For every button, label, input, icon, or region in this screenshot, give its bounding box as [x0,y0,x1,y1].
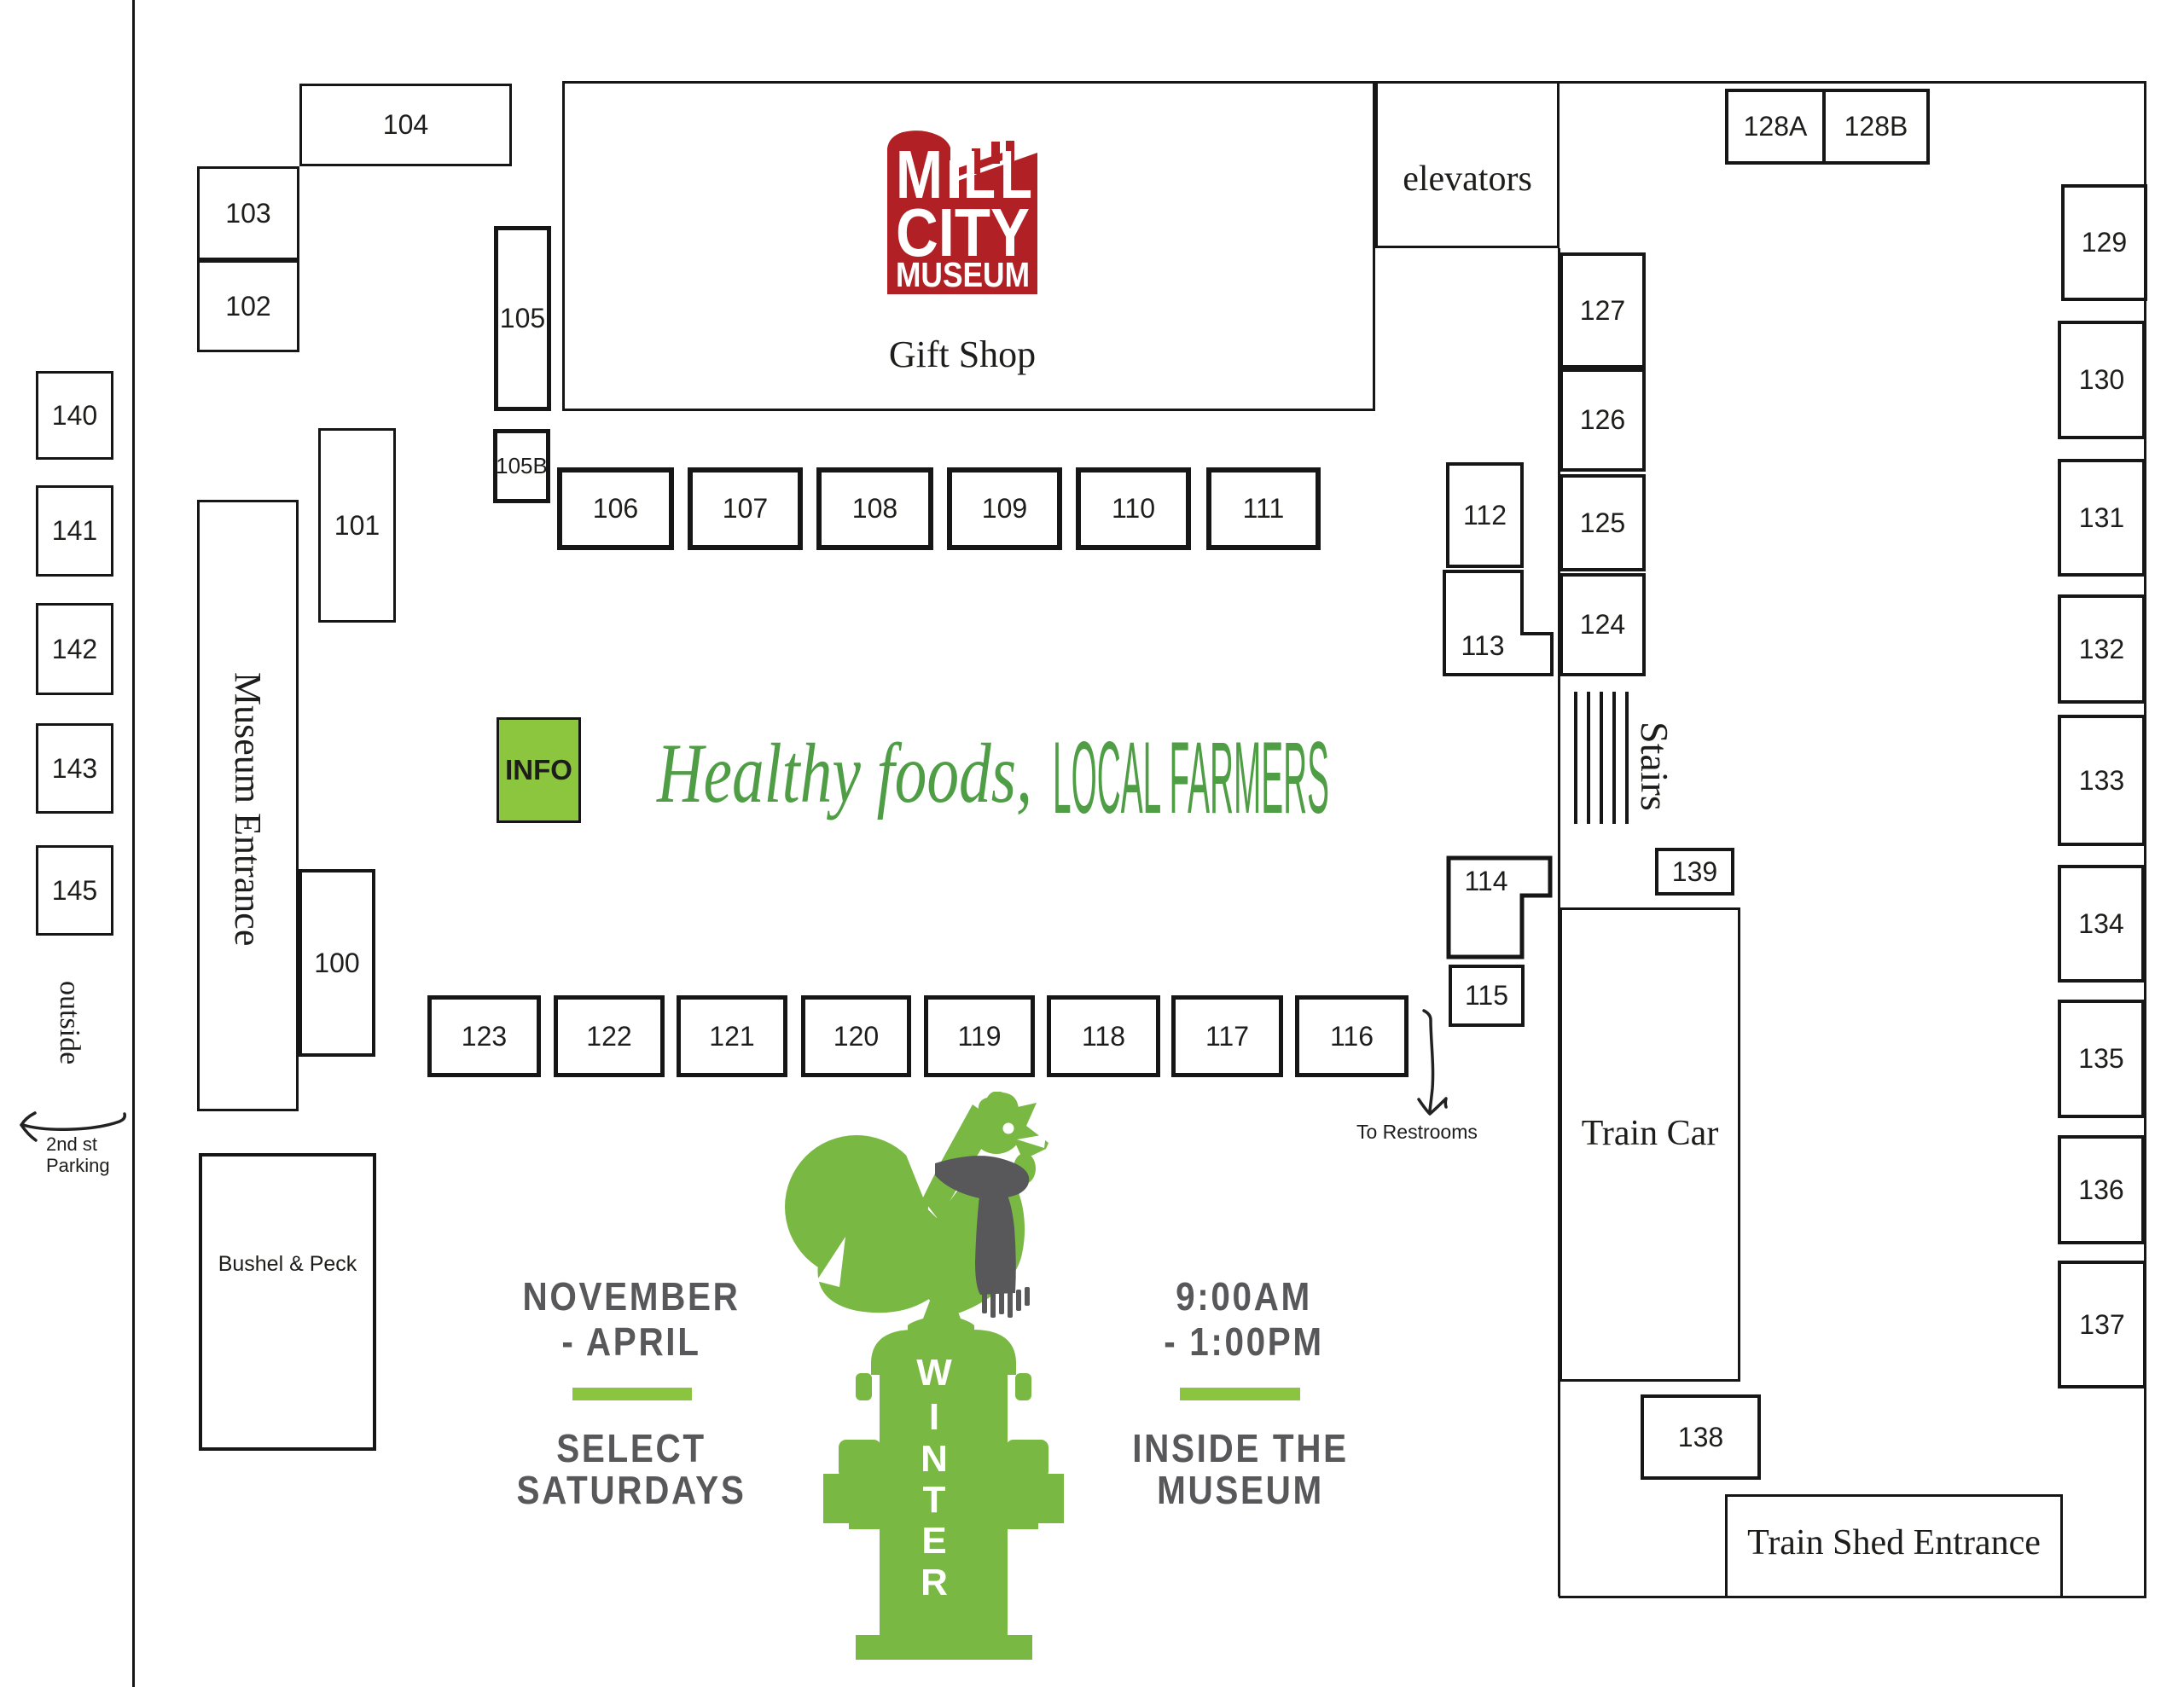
svg-text:LOCAL FARMERS: LOCAL FARMERS [1053,721,1329,835]
svg-text:E: E [921,1520,946,1562]
svg-text:I: I [929,1396,939,1438]
svg-text:W: W [916,1352,952,1394]
svg-text:T: T [923,1479,946,1521]
svg-text:Healthy foods,: Healthy foods, [655,726,1032,820]
svg-text:114: 114 [1464,866,1507,896]
svg-text:R: R [921,1562,948,1603]
svg-text:113: 113 [1461,630,1504,661]
svg-text:MUSEUM: MUSEUM [896,255,1030,294]
svg-text:N: N [921,1438,948,1480]
